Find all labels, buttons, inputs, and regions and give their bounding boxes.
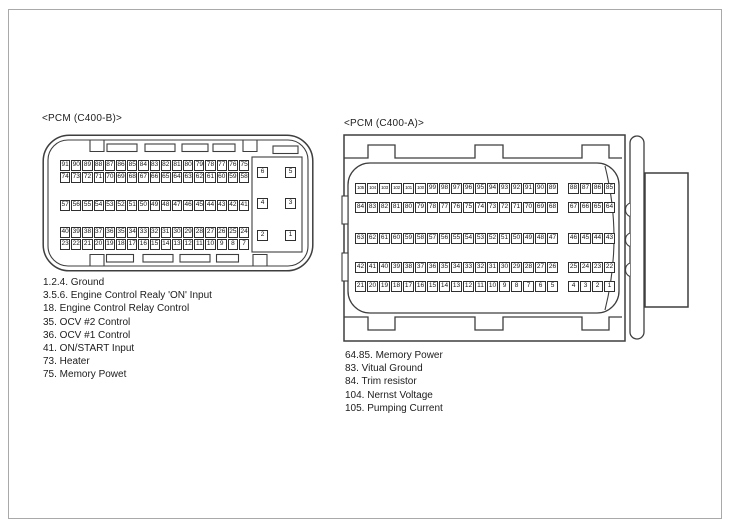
connector-b-pin-legend: 1.2.4. Ground3.5.6. Engine Control Realy… [43, 276, 212, 382]
pin-88: 88 [568, 183, 579, 194]
pin-103: 103 [379, 183, 390, 194]
pin-86: 86 [116, 160, 126, 171]
pin-50: 50 [511, 233, 522, 244]
pin-row: 8483828180797877767574737271706968676665… [355, 202, 615, 213]
pin-16: 16 [415, 281, 426, 292]
pin-36: 36 [427, 262, 438, 273]
pin-note: 105. Pumping Current [345, 402, 443, 415]
pin-71: 71 [511, 202, 522, 213]
pin-68: 68 [127, 172, 137, 183]
pin-37: 37 [415, 262, 426, 273]
pin-29: 29 [511, 262, 522, 273]
pin-row: 212019181716151413121110987654321 [355, 281, 615, 292]
pin-47: 47 [547, 233, 558, 244]
pin-70: 70 [105, 172, 115, 183]
pin-51: 51 [499, 233, 510, 244]
pin-63: 63 [183, 172, 193, 183]
pin-66: 66 [580, 202, 591, 213]
pin-13: 13 [451, 281, 462, 292]
pin-48: 48 [535, 233, 546, 244]
pin-row: 9190898887868584838281807978777675 [60, 160, 249, 171]
pin-3: 3 [285, 198, 296, 209]
pin-row: 2322212019181716151413121110987 [60, 239, 249, 250]
pin-89: 89 [82, 160, 92, 171]
pin-45: 45 [194, 200, 204, 211]
pin-55: 55 [451, 233, 462, 244]
pin-15: 15 [427, 281, 438, 292]
pin-note: 104. Nernst Voltage [345, 389, 443, 402]
pin-62: 62 [367, 233, 378, 244]
pin-80: 80 [183, 160, 193, 171]
pin-33: 33 [463, 262, 474, 273]
pin-69: 69 [116, 172, 126, 183]
pin-82: 82 [161, 160, 171, 171]
pin-32: 32 [475, 262, 486, 273]
pin-note: 36. OCV #1 Control [43, 329, 212, 342]
pin-40: 40 [60, 227, 70, 238]
pin-row: 4039383736353433323130292827262524 [60, 227, 249, 238]
pin-31: 31 [161, 227, 171, 238]
connector-a-pin-legend: 64.85. Memory Power83. Vitual Ground84. … [345, 349, 443, 415]
pin-66: 66 [150, 172, 160, 183]
pin-90: 90 [535, 183, 546, 194]
pin-29: 29 [183, 227, 193, 238]
pin-11: 11 [475, 281, 486, 292]
pin-11: 11 [194, 239, 204, 250]
pin-3: 3 [580, 281, 591, 292]
pin-102: 102 [391, 183, 402, 194]
pin-6: 6 [535, 281, 546, 292]
pin-4: 4 [257, 198, 268, 209]
pin-84: 84 [138, 160, 148, 171]
pin-note: 35. OCV #2 Control [43, 316, 212, 329]
pin-79: 79 [194, 160, 204, 171]
pin-26: 26 [547, 262, 558, 273]
pin-27: 27 [205, 227, 215, 238]
pin-34: 34 [127, 227, 137, 238]
pin-62: 62 [194, 172, 204, 183]
pin-81: 81 [391, 202, 402, 213]
pin-77: 77 [439, 202, 450, 213]
pin-25: 25 [568, 262, 579, 273]
pin-13: 13 [172, 239, 182, 250]
pin-note: 75. Memory Powet [43, 368, 212, 381]
pin-row: 7473727170696867666564636261605958 [60, 172, 249, 183]
pin-22: 22 [71, 239, 81, 250]
pin-34: 34 [451, 262, 462, 273]
pin-92: 92 [511, 183, 522, 194]
pin-20: 20 [367, 281, 378, 292]
pin-73: 73 [487, 202, 498, 213]
pin-6: 6 [257, 167, 268, 178]
pin-note: 64.85. Memory Power [345, 349, 443, 362]
pin-64: 64 [172, 172, 182, 183]
pin-10: 10 [487, 281, 498, 292]
pin-41: 41 [239, 200, 249, 211]
pin-27: 27 [535, 262, 546, 273]
pin-2: 2 [592, 281, 603, 292]
pin-95: 95 [475, 183, 486, 194]
pin-21: 21 [355, 281, 366, 292]
pin-12: 12 [463, 281, 474, 292]
pin-104: 104 [367, 183, 378, 194]
pin-74: 74 [475, 202, 486, 213]
pin-42: 42 [228, 200, 238, 211]
pin-91: 91 [523, 183, 534, 194]
connector-c400-a-diagram: 1051041031021011009998979695949392919089… [343, 133, 691, 343]
pin-note: 73. Heater [43, 355, 212, 368]
pin-83: 83 [367, 202, 378, 213]
pin-18: 18 [116, 239, 126, 250]
pin-91: 91 [60, 160, 70, 171]
pin-41: 41 [367, 262, 378, 273]
pin-36: 36 [105, 227, 115, 238]
pin-58: 58 [239, 172, 249, 183]
pin-44: 44 [592, 233, 603, 244]
pin-28: 28 [194, 227, 204, 238]
pin-81: 81 [172, 160, 182, 171]
pin-10: 10 [205, 239, 215, 250]
pin-94: 94 [487, 183, 498, 194]
pin-60: 60 [391, 233, 402, 244]
pin-14: 14 [439, 281, 450, 292]
pin-43: 43 [217, 200, 227, 211]
pin-69: 69 [535, 202, 546, 213]
pin-19: 19 [379, 281, 390, 292]
pin-33: 33 [138, 227, 148, 238]
pin-98: 98 [439, 183, 450, 194]
pin-61: 61 [379, 233, 390, 244]
pin-75: 75 [239, 160, 249, 171]
pin-1: 1 [285, 230, 296, 241]
pin-56: 56 [439, 233, 450, 244]
pin-67: 67 [138, 172, 148, 183]
pin-100: 100 [415, 183, 426, 194]
pin-9: 9 [217, 239, 227, 250]
pin-59: 59 [228, 172, 238, 183]
pin-74: 74 [60, 172, 70, 183]
pin-101: 101 [403, 183, 414, 194]
pin-31: 31 [487, 262, 498, 273]
pin-78: 78 [427, 202, 438, 213]
pin-row: 1051041031021011009998979695949392919089… [355, 183, 615, 194]
pin-4: 4 [568, 281, 579, 292]
pin-63: 63 [355, 233, 366, 244]
pin-30: 30 [172, 227, 182, 238]
pin-57: 57 [427, 233, 438, 244]
pin-68: 68 [547, 202, 558, 213]
pin-30: 30 [499, 262, 510, 273]
pin-24: 24 [580, 262, 591, 273]
pin-99: 99 [427, 183, 438, 194]
pin-row: 21 [257, 230, 296, 241]
pin-72: 72 [82, 172, 92, 183]
pin-55: 55 [82, 200, 92, 211]
pin-row: 5756555453525150494847464544434241 [60, 200, 249, 211]
pin-61: 61 [205, 172, 215, 183]
pin-60: 60 [217, 172, 227, 183]
pin-59: 59 [403, 233, 414, 244]
pin-9: 9 [499, 281, 510, 292]
pin-note: 83. Vitual Ground [345, 362, 443, 375]
pin-note: 18. Engine Control Relay Control [43, 302, 212, 315]
pin-7: 7 [239, 239, 249, 250]
pin-21: 21 [82, 239, 92, 250]
pin-43: 43 [604, 233, 615, 244]
pin-40: 40 [379, 262, 390, 273]
connector-b-title: <PCM (C400-B)> [42, 113, 122, 124]
pin-44: 44 [205, 200, 215, 211]
pin-54: 54 [463, 233, 474, 244]
pin-38: 38 [82, 227, 92, 238]
pin-12: 12 [183, 239, 193, 250]
pin-1: 1 [604, 281, 615, 292]
pin-87: 87 [580, 183, 591, 194]
pin-78: 78 [205, 160, 215, 171]
pin-89: 89 [547, 183, 558, 194]
pin-53: 53 [105, 200, 115, 211]
pin-19: 19 [105, 239, 115, 250]
pin-note: 3.5.6. Engine Control Realy 'ON' Input [43, 289, 212, 302]
pin-57: 57 [60, 200, 70, 211]
pin-87: 87 [105, 160, 115, 171]
pin-86: 86 [592, 183, 603, 194]
pin-88: 88 [94, 160, 104, 171]
pin-row: 4241403938373635343332313029282726252423… [355, 262, 615, 273]
pin-70: 70 [523, 202, 534, 213]
pin-note: 41. ON/START Input [43, 342, 212, 355]
pin-35: 35 [439, 262, 450, 273]
pin-49: 49 [523, 233, 534, 244]
pin-7: 7 [523, 281, 534, 292]
pin-45: 45 [580, 233, 591, 244]
pin-note: 84. Trim resistor [345, 375, 443, 388]
pin-46: 46 [183, 200, 193, 211]
pin-51: 51 [127, 200, 137, 211]
pin-32: 32 [150, 227, 160, 238]
pin-56: 56 [71, 200, 81, 211]
pin-65: 65 [592, 202, 603, 213]
pin-84: 84 [355, 202, 366, 213]
pin-97: 97 [451, 183, 462, 194]
pin-8: 8 [228, 239, 238, 250]
pin-row: 6362616059585756555453525150494847464544… [355, 233, 615, 244]
pin-37: 37 [94, 227, 104, 238]
pin-80: 80 [403, 202, 414, 213]
pin-82: 82 [379, 202, 390, 213]
pin-28: 28 [523, 262, 534, 273]
pin-53: 53 [475, 233, 486, 244]
pin-18: 18 [391, 281, 402, 292]
pin-96: 96 [463, 183, 474, 194]
pin-47: 47 [172, 200, 182, 211]
pin-42: 42 [355, 262, 366, 273]
pin-22: 22 [604, 262, 615, 273]
pin-35: 35 [116, 227, 126, 238]
pin-76: 76 [451, 202, 462, 213]
pin-73: 73 [71, 172, 81, 183]
pin-54: 54 [94, 200, 104, 211]
pin-49: 49 [150, 200, 160, 211]
pin-23: 23 [592, 262, 603, 273]
pin-39: 39 [71, 227, 81, 238]
pin-52: 52 [487, 233, 498, 244]
pin-2: 2 [257, 230, 268, 241]
pin-17: 17 [127, 239, 137, 250]
pin-48: 48 [161, 200, 171, 211]
pin-72: 72 [499, 202, 510, 213]
pin-5: 5 [547, 281, 558, 292]
pin-93: 93 [499, 183, 510, 194]
pin-14: 14 [161, 239, 171, 250]
pin-105: 105 [355, 183, 366, 194]
page: <PCM (C400-B)> 9190898887868584838281807… [0, 0, 730, 528]
connector-a-title: <PCM (C400-A)> [344, 118, 424, 129]
pin-71: 71 [94, 172, 104, 183]
pin-58: 58 [415, 233, 426, 244]
connector-c400-b-diagram: 9190898887868584838281807978777675747372… [42, 134, 314, 272]
pin-8: 8 [511, 281, 522, 292]
pin-15: 15 [150, 239, 160, 250]
pin-67: 67 [568, 202, 579, 213]
pin-26: 26 [217, 227, 227, 238]
pin-note: 1.2.4. Ground [43, 276, 212, 289]
pin-85: 85 [604, 183, 615, 194]
pin-23: 23 [60, 239, 70, 250]
pin-16: 16 [138, 239, 148, 250]
pin-38: 38 [403, 262, 414, 273]
pin-row: 43 [257, 198, 296, 209]
pin-52: 52 [116, 200, 126, 211]
pin-79: 79 [415, 202, 426, 213]
pin-77: 77 [217, 160, 227, 171]
pin-65: 65 [161, 172, 171, 183]
pin-64: 64 [604, 202, 615, 213]
pin-85: 85 [127, 160, 137, 171]
pin-50: 50 [138, 200, 148, 211]
pin-20: 20 [94, 239, 104, 250]
pin-39: 39 [391, 262, 402, 273]
pin-25: 25 [228, 227, 238, 238]
pin-46: 46 [568, 233, 579, 244]
pin-83: 83 [150, 160, 160, 171]
pin-row: 65 [257, 167, 296, 178]
pin-24: 24 [239, 227, 249, 238]
pin-17: 17 [403, 281, 414, 292]
pin-75: 75 [463, 202, 474, 213]
pin-90: 90 [71, 160, 81, 171]
pin-5: 5 [285, 167, 296, 178]
pin-76: 76 [228, 160, 238, 171]
